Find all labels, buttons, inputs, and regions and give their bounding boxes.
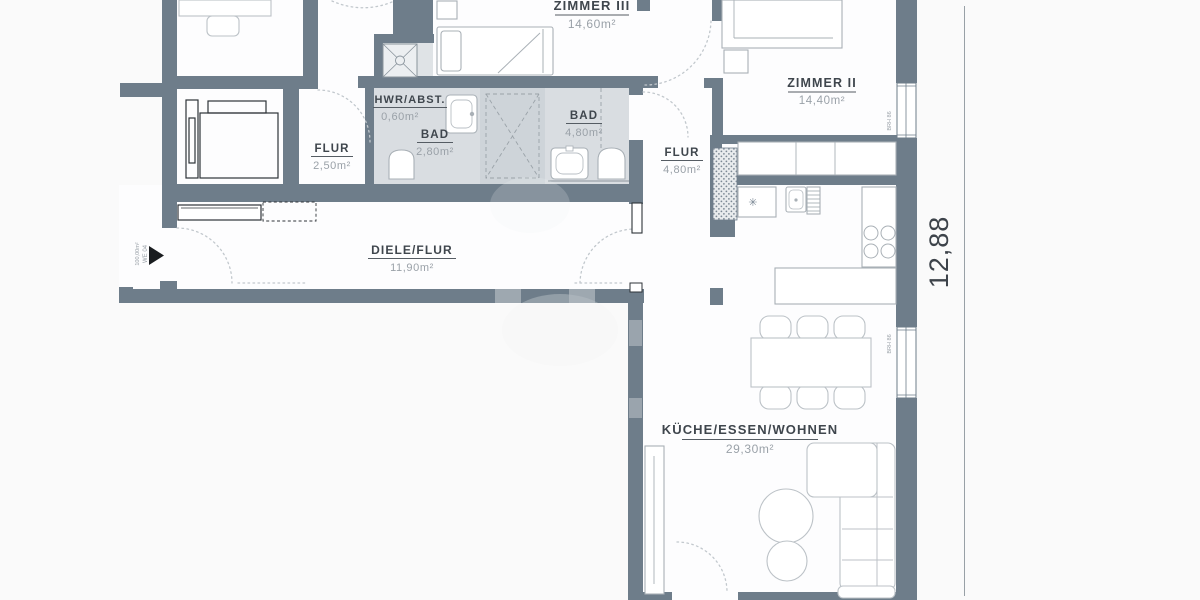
svg-text:ZIMMER II: ZIMMER II xyxy=(787,76,857,90)
chair xyxy=(834,316,865,340)
svg-text:11,90m²: 11,90m² xyxy=(390,262,434,274)
svg-text:BAD: BAD xyxy=(421,129,449,141)
shelf-cabinet xyxy=(645,446,664,594)
floor-plan-page: BRH 86 BRH 86 xyxy=(0,0,1200,600)
toilet-icon-2 xyxy=(598,148,625,179)
installation-shaft xyxy=(713,148,737,220)
svg-text:2,50m²: 2,50m² xyxy=(313,160,351,172)
dimension-chain: 12,88 xyxy=(924,6,965,596)
svg-text:FLUR: FLUR xyxy=(314,143,349,155)
pillow xyxy=(441,31,461,71)
sideboard xyxy=(178,205,261,220)
chair xyxy=(760,316,791,340)
svg-text:FLUR: FLUR xyxy=(664,147,699,159)
dining-table xyxy=(751,338,871,387)
chair xyxy=(797,385,828,409)
kitchen-peninsula xyxy=(775,268,896,304)
svg-text:KÜCHE/ESSEN/WOHNEN: KÜCHE/ESSEN/WOHNEN xyxy=(662,422,839,437)
sliding-door-leaf xyxy=(632,203,642,233)
svg-text:0,60m²: 0,60m² xyxy=(381,111,419,123)
sink-symbol: ✳ xyxy=(748,196,757,209)
desk xyxy=(179,0,271,16)
svg-text:ZIMMER III: ZIMMER III xyxy=(554,0,631,13)
sink-icon-2 xyxy=(551,146,588,179)
pouf-round xyxy=(767,541,807,581)
svg-text:4,80m²: 4,80m² xyxy=(565,127,603,139)
sink-icon xyxy=(446,95,477,133)
entrance-unit: WE 04 xyxy=(143,244,149,263)
dining-set xyxy=(751,316,871,409)
svg-text:14,40m²: 14,40m² xyxy=(799,95,845,107)
svg-text:DIELE/FLUR: DIELE/FLUR xyxy=(371,243,453,257)
coffee-table-round xyxy=(759,489,813,543)
svg-text:HWR/ABST.: HWR/ABST. xyxy=(374,94,445,106)
svg-text:BAD: BAD xyxy=(570,110,598,122)
window-annotation-2: BRH 86 xyxy=(887,334,893,353)
double-bed xyxy=(722,0,842,48)
svg-text:4,80m²: 4,80m² xyxy=(663,164,701,176)
window-wohnen xyxy=(897,327,916,398)
shower-icon xyxy=(383,44,417,77)
chair xyxy=(797,316,828,340)
entrance-total-area: 100,00m² xyxy=(135,242,141,265)
chair xyxy=(834,385,865,409)
window-zimmer2 xyxy=(897,83,916,138)
nightstand-2 xyxy=(724,50,748,73)
toilet-icon xyxy=(389,150,414,179)
window-annotation-1: BRH 86 xyxy=(887,111,893,130)
kitchen-wall-stub xyxy=(710,288,723,305)
desk-chair xyxy=(207,16,239,36)
chair xyxy=(760,385,791,409)
kitchen-vent xyxy=(807,187,820,214)
built-in-closet xyxy=(738,142,896,175)
svg-text:29,30m²: 29,30m² xyxy=(726,442,774,456)
sliding-door-jamb xyxy=(630,283,642,292)
floor-plan-drawing: BRH 86 BRH 86 xyxy=(0,0,1200,600)
svg-text:2,80m²: 2,80m² xyxy=(416,146,454,158)
dimension-value: 12,88 xyxy=(924,216,954,289)
svg-text:14,60m²: 14,60m² xyxy=(568,17,616,31)
nightstand xyxy=(437,1,457,19)
